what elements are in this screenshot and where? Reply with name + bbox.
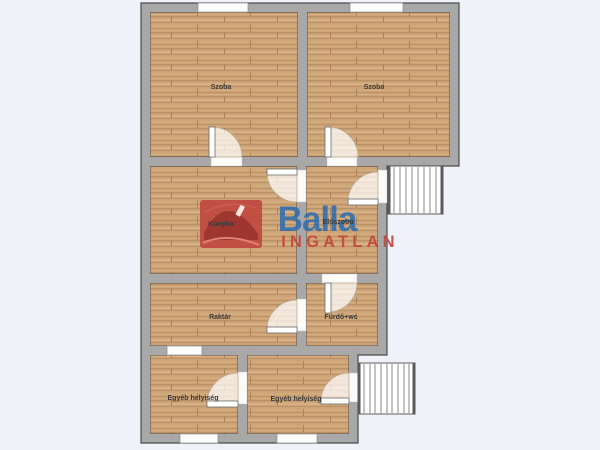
window-icon: [198, 3, 248, 12]
room-label-eloszoba: Előszoba: [323, 219, 354, 226]
room-label-egyeb-1: Egyéb helyiség: [168, 395, 219, 402]
room-label-egyeb-2: Egyéb helyiség: [271, 396, 322, 403]
wall-segment: [450, 3, 459, 166]
staircase-bottom-icon: [358, 363, 415, 414]
room-label-szoba-1: Szoba: [211, 84, 232, 91]
window-icon: [167, 346, 202, 355]
room-label-szoba-2: Szoba: [364, 84, 385, 91]
floorplan-page: Balla INGATLAN Szoba Szoba Konyha Előszo…: [0, 0, 600, 450]
window-icon: [350, 3, 403, 12]
staircase-top-icon: [388, 166, 443, 214]
wall-segment: [141, 3, 150, 443]
window-icon: [180, 434, 218, 443]
floorplan-canvas: Balla INGATLAN Szoba Szoba Konyha Előszo…: [0, 0, 600, 450]
room-label-raktar: Raktár: [209, 314, 231, 321]
room-label-furdo-wc: Fürdő+wc: [324, 314, 357, 321]
watermark-sub-text: INGATLAN: [281, 233, 399, 251]
window-icon: [277, 434, 317, 443]
room-label-konyha: Konyha: [208, 221, 234, 228]
wall-segment: [141, 434, 358, 443]
wall-segment: [298, 3, 307, 166]
